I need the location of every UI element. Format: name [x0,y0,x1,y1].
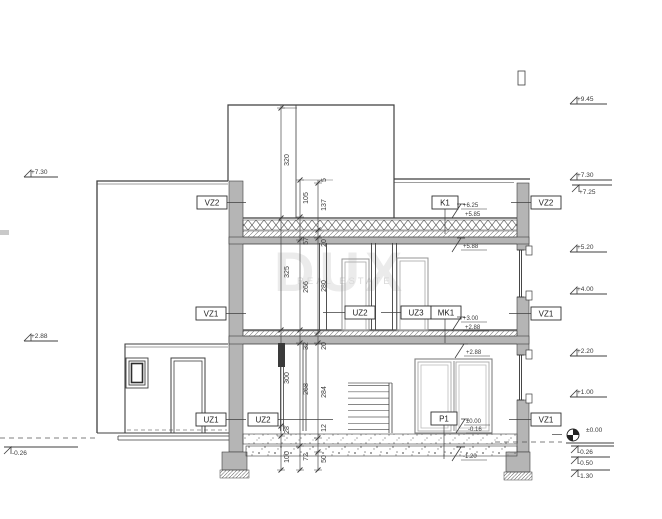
dimension-value: 105 [303,192,310,204]
watermark: DUX REAL ESTATE [274,240,407,303]
elevation-value: +1.00 [577,389,594,396]
elevation-value: +9.45 [577,96,594,103]
elevation-tick-icon [24,170,31,177]
section-drawing-svg: DUX REAL ESTATE [0,0,662,519]
dimension-value: 325 [284,266,291,278]
window-reveal-tick [526,394,532,403]
upper-block-outline [228,105,394,218]
dimension-value: 20 [321,342,328,350]
architectural-section-drawing: DUX REAL ESTATE [0,0,662,519]
dimension-value: 100 [284,451,291,463]
dimension-value: 320 [284,154,291,166]
dimension-value: 300 [284,372,291,384]
dimension-value: 50 [321,455,328,463]
floor-screed-band [243,434,517,444]
dimension-value: 284 [321,386,328,398]
inner-elevation-value: ±0.00 [466,419,482,425]
elevation-value: +4.00 [577,286,594,293]
dimension-value: 268 [303,383,310,395]
elevation-tick-icon [24,334,31,341]
component-label-vz1-left: VZ1 [204,310,219,319]
dimension-value: 5 [321,178,328,182]
elevation-value: ±0.00 [586,427,603,434]
dimension-value: 57 [303,237,310,245]
dimension-value: 137 [321,199,328,211]
elevation-tick-icon [570,390,577,397]
component-label-vz2-right: VZ2 [539,199,554,208]
inner-elevation-value: +3.00 [463,316,479,322]
dimension-value: 280 [321,280,328,292]
left-cut-wall [229,181,243,452]
annex-window [126,358,148,388]
component-label-uz2-upper: UZ2 [352,309,368,318]
component-label-uz1: UZ1 [203,416,219,425]
dimension-value: 12 [321,424,328,432]
roof-slab [229,237,529,244]
inner-elevation-value: +5.88 [463,244,479,250]
lower-window-glass [520,355,522,400]
inner-elevation-value: -0.16 [468,427,482,433]
inner-elevation-value: +2.88 [466,350,482,356]
elevation-value: +2.20 [577,348,594,355]
elevation-value: +7.30 [577,172,594,179]
component-label-vz1-right-upper: VZ1 [539,310,554,319]
left-footing-hatch [220,470,249,478]
right-footing-hatch [504,472,532,480]
window-reveal-tick [526,291,532,300]
elevation-tick-icon [571,457,578,464]
dimension-value: 32 [303,342,310,350]
mid-floor-hatch [243,331,517,336]
roof-insulation-hatch [243,220,517,230]
datum-quadrant [573,429,579,435]
inner-elevation-value: +2.88 [465,325,481,331]
dimension-value: 28 [284,426,291,434]
window-reveal-tick [526,246,532,255]
datum-quadrant [567,435,573,441]
component-label-uz3: UZ3 [408,309,424,318]
right-cut-wall-low [517,400,529,452]
inner-elevation-value: +6.25 [463,203,479,209]
component-label-vz2-left: VZ2 [205,199,220,208]
dimension-value: 72 [303,453,310,461]
window-reveal-tick [526,350,532,359]
inner-elevation-value: +5.85 [465,212,481,218]
elevation-tick-icon [571,446,578,453]
ground-build-up [220,434,532,480]
elevation-value: +7.30 [31,169,48,176]
elevation-tick-icon [571,470,578,477]
elevation-tick-icon [4,447,11,454]
elevation-tick-icon [570,173,577,180]
elevation-value: +7.25 [579,189,596,196]
elevation-tick-icon [570,245,577,252]
watermark-main-text: DUX [274,240,407,303]
roof-vent [518,71,525,85]
component-label-uz2-ground: UZ2 [255,416,271,425]
component-label-vz1-right-ground: VZ1 [539,416,554,425]
component-label-k1: K1 [440,199,450,208]
inner-elevation-value: -1.20 [463,454,477,460]
elevation-value: -0.26 [12,450,27,457]
component-label-p1: P1 [439,415,449,424]
elevation-tick-icon [572,185,579,192]
elevation-tick-icon [570,287,577,294]
elevation-value: -0.50 [578,460,593,467]
dimension-value: 266 [303,281,310,293]
elevation-value: -0.26 [578,449,593,456]
roof-screed-hatch [243,231,517,237]
right-cut-wall-mid [517,297,529,355]
mid-slab [229,336,529,344]
stairs [348,383,392,433]
component-label-mk1: MK1 [438,309,455,318]
elevation-value: +5.20 [577,244,594,251]
annex-base [118,430,232,440]
left-footing [222,452,247,470]
elevation-tick-icon [570,349,577,356]
elevation-value: -1.30 [578,473,593,480]
left-edge-watermark-fragment [0,230,9,235]
dimension-value: 20 [321,239,328,247]
door-lintel [278,343,285,367]
upper-window-glass [520,250,522,297]
elevation-tick-icon [570,97,577,104]
right-parapet [394,179,530,183]
elevation-value: +2.88 [31,333,48,340]
